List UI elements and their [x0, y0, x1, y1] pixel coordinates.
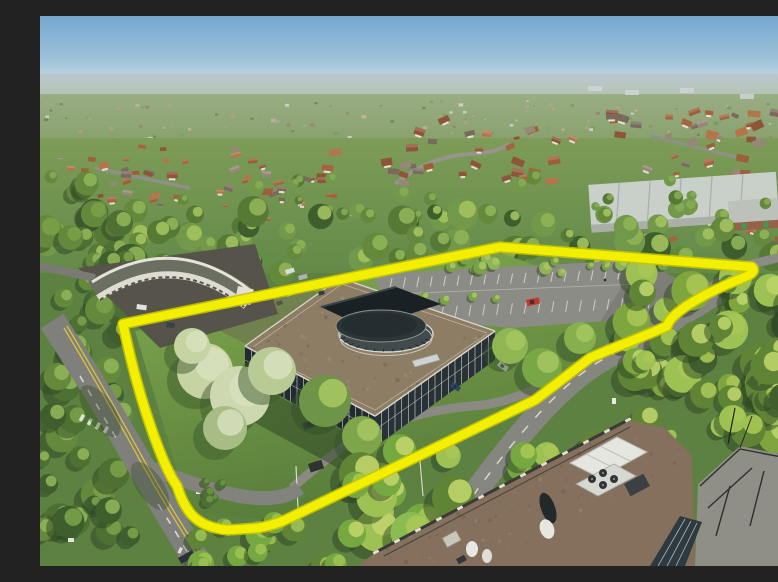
distant-speck — [525, 111, 528, 113]
tree-canopy-highlight — [413, 227, 423, 237]
distant-speck — [553, 108, 555, 110]
texture-dot — [479, 335, 481, 337]
distant-speck — [464, 122, 468, 125]
distant-speck — [188, 128, 191, 130]
distant-speck — [701, 107, 703, 109]
tower-roof-inner — [341, 313, 417, 338]
tree-canopy-highlight — [182, 195, 188, 201]
tree-canopy-highlight — [603, 209, 611, 217]
distant-speck — [484, 119, 486, 120]
tree-canopy-highlight — [485, 205, 496, 216]
distant-speck — [171, 125, 173, 126]
texture-dot — [404, 560, 408, 564]
texture-dot — [477, 520, 481, 524]
distant-speck — [619, 109, 621, 110]
house-wall — [608, 119, 615, 121]
tree-canopy-highlight — [105, 499, 120, 514]
tree-canopy-highlight — [444, 296, 450, 302]
distant-speck — [139, 125, 143, 128]
distant-speck — [561, 129, 564, 131]
tree-canopy-highlight — [84, 173, 97, 186]
distant-speck — [255, 117, 257, 119]
tree-canopy-highlight — [479, 262, 487, 270]
tree-canopy-highlight — [128, 528, 139, 539]
distant-speck — [593, 104, 596, 106]
tree-canopy-highlight — [429, 193, 436, 200]
distant-speck — [44, 118, 48, 121]
distant-speck — [440, 100, 443, 102]
tree-canopy-highlight — [61, 290, 72, 301]
texture-dot — [396, 378, 400, 382]
distant-speck — [634, 110, 637, 112]
distant-speck — [697, 134, 700, 136]
tree-canopy-highlight — [759, 229, 769, 239]
house-roof — [322, 164, 334, 171]
tree-canopy-highlight — [133, 201, 146, 214]
tree-canopy-highlight — [46, 476, 57, 487]
tree-canopy-highlight — [285, 224, 295, 234]
distant-speck — [89, 119, 92, 121]
white-roof-unit — [466, 541, 478, 557]
house-wall — [280, 201, 284, 203]
pedestrian — [604, 279, 607, 282]
distant-speck — [231, 115, 236, 118]
house-wall — [169, 178, 176, 180]
distant-speck — [727, 106, 732, 109]
texture-dot — [580, 449, 583, 452]
distant-building — [680, 88, 694, 93]
distant-speck — [181, 134, 184, 136]
tree-canopy-highlight — [40, 451, 49, 460]
tree-canopy-highlight — [720, 210, 728, 218]
tree-canopy-highlight — [594, 203, 599, 208]
texture-dot — [498, 540, 501, 543]
distant-speck — [60, 103, 63, 105]
distant-speck — [649, 125, 652, 127]
texture-dot — [656, 458, 658, 460]
texture-dot — [579, 509, 582, 512]
texture-dot — [329, 331, 330, 332]
house-roof-light — [475, 147, 483, 149]
house-roof — [398, 180, 409, 187]
distant-speck — [334, 132, 338, 135]
warehouse-green-door — [763, 221, 768, 227]
tree-canopy-highlight — [454, 230, 469, 245]
distant-speck — [65, 117, 67, 118]
tree-canopy-highlight — [731, 236, 745, 250]
texture-dot — [351, 351, 353, 353]
house-wall — [300, 206, 304, 208]
distant-speck — [86, 116, 88, 117]
texture-dot — [495, 515, 498, 518]
texture-dot — [474, 337, 477, 340]
tree-canopy-highlight — [532, 171, 540, 179]
texture-dot — [482, 539, 485, 542]
tree-canopy-highlight — [206, 495, 213, 502]
texture-dot — [488, 519, 491, 522]
texture-dot — [307, 345, 310, 348]
tree-canopy-highlight — [414, 243, 426, 255]
texture-dot — [429, 557, 431, 559]
distant-speck — [455, 102, 458, 104]
texture-dot — [404, 373, 408, 377]
distant-speck — [135, 104, 139, 107]
distant-speck — [459, 103, 463, 106]
pale-tree-highlight — [217, 409, 243, 435]
distant-speck — [345, 112, 348, 114]
tree-canopy-highlight — [518, 179, 526, 187]
house-roof — [545, 178, 558, 185]
tree-canopy-highlight — [450, 263, 456, 269]
tree-canopy-highlight — [399, 208, 415, 224]
texture-dot — [510, 509, 514, 513]
tree-canopy-highlight — [366, 209, 374, 217]
distant-speck — [449, 111, 452, 113]
tree-canopy-highlight — [577, 237, 589, 249]
distant-speck — [422, 107, 425, 109]
tree-canopy-highlight — [459, 201, 476, 218]
tree-canopy-highlight — [67, 227, 81, 241]
tree-canopy-highlight — [42, 218, 60, 236]
texture-dot — [473, 524, 475, 526]
tree-canopy-highlight — [293, 179, 298, 184]
distant-speck — [361, 115, 366, 118]
tree-canopy-highlight — [701, 382, 717, 398]
tree-canopy-highlight — [642, 408, 658, 424]
distant-speck — [390, 120, 394, 123]
distant-speck — [215, 113, 218, 115]
aerial-photograph — [40, 16, 778, 566]
distant-speck — [287, 124, 291, 127]
texture-dot — [428, 535, 431, 538]
white-roof-unit — [482, 549, 492, 563]
texture-dot — [409, 371, 412, 374]
pale-tree-highlight — [186, 331, 208, 353]
texture-dot — [488, 505, 491, 508]
tree-canopy-highlight — [77, 316, 86, 325]
house-roof — [279, 198, 285, 201]
house-roof — [388, 168, 400, 175]
tree-canopy-highlight — [520, 444, 535, 459]
tree-canopy-highlight — [764, 198, 770, 204]
house-roof — [747, 110, 760, 118]
texture-dot — [327, 357, 331, 361]
distant-speck — [285, 104, 289, 107]
tree-canopy-highlight — [623, 217, 637, 231]
distant-speck — [691, 131, 693, 132]
distant-speck — [358, 105, 361, 107]
texture-dot — [388, 556, 392, 560]
bus-stop-sign — [612, 398, 616, 404]
texture-dot — [636, 438, 638, 440]
texture-dot — [581, 493, 584, 496]
tree-canopy-highlight — [204, 478, 209, 483]
tree-canopy-highlight — [727, 387, 741, 401]
texture-dot — [324, 315, 328, 319]
tree-canopy-highlight — [124, 252, 134, 262]
tree-canopy-highlight — [605, 263, 610, 268]
tree-canopy-highlight — [566, 230, 574, 238]
distant-speck — [423, 126, 427, 129]
tree-canopy-highlight — [255, 544, 266, 555]
texture-dot — [463, 337, 465, 339]
tree-canopy-highlight — [116, 212, 130, 226]
texture-dot — [673, 461, 677, 465]
distant-speck — [676, 108, 678, 109]
texture-dot — [560, 465, 563, 468]
house-roof-light — [121, 171, 132, 174]
tree-canopy-highlight — [492, 258, 499, 265]
distant-speck — [714, 122, 719, 125]
distant-speck — [587, 119, 590, 121]
distant-speck — [275, 120, 280, 123]
distant-speck — [549, 103, 553, 106]
tree-canopy-highlight — [317, 206, 331, 220]
distant-speck — [168, 104, 172, 107]
tree-canopy-highlight — [537, 351, 559, 373]
texture-dot — [277, 334, 279, 336]
tree-canopy-highlight — [690, 191, 696, 197]
texture-dot — [528, 509, 530, 511]
texture-dot — [524, 541, 528, 545]
pale-tree-highlight — [264, 351, 293, 380]
tree-canopy-highlight — [96, 297, 112, 313]
texture-dot — [558, 504, 560, 506]
tree-canopy-highlight — [206, 237, 215, 246]
texture-dot — [526, 479, 527, 480]
tree-canopy-highlight — [396, 437, 415, 456]
tree-canopy-highlight — [399, 187, 408, 196]
texture-dot — [577, 496, 579, 498]
texture-dot — [485, 499, 487, 501]
distant-speck — [291, 130, 294, 132]
texture-dot — [610, 495, 612, 497]
tree-canopy-highlight — [193, 207, 203, 217]
texture-dot — [426, 555, 428, 557]
tree-canopy-highlight — [576, 324, 594, 342]
house-wall — [477, 152, 482, 154]
texture-dot — [405, 547, 407, 549]
distant-speck — [50, 110, 53, 112]
tree-canopy-highlight — [333, 555, 345, 566]
house-wall — [460, 176, 465, 178]
texture-dot — [491, 525, 493, 527]
distant-speck — [547, 127, 549, 128]
texture-dot — [430, 542, 432, 544]
tree-canopy-highlight — [50, 405, 64, 419]
distant-speck — [443, 114, 446, 116]
house-roof — [163, 158, 170, 162]
tree-canopy-highlight — [395, 250, 405, 260]
tree-canopy-highlight — [293, 245, 302, 254]
distant-speck — [585, 126, 589, 128]
texture-dot — [321, 311, 324, 314]
distant-speck — [631, 113, 634, 115]
distant-speck — [451, 132, 453, 133]
texture-dot — [267, 340, 270, 343]
texture-dot — [457, 555, 459, 557]
distant-speck — [769, 136, 772, 138]
texture-dot — [561, 489, 565, 493]
texture-dot — [650, 453, 653, 456]
tree-canopy-highlight — [561, 269, 566, 274]
tree-canopy-highlight — [506, 331, 526, 351]
tree-canopy-highlight — [541, 213, 555, 227]
texture-dot — [536, 509, 538, 511]
tree-canopy-highlight — [495, 295, 500, 300]
texture-dot — [305, 359, 307, 361]
tree-canopy-highlight — [187, 225, 202, 240]
house-roof — [160, 147, 166, 151]
distant-speck — [109, 127, 113, 130]
distant-speck — [527, 100, 529, 101]
distant-speck — [515, 120, 518, 122]
tree-canopy-highlight — [448, 479, 472, 503]
tree-canopy-highlight — [438, 233, 450, 245]
texture-dot — [351, 385, 353, 387]
texture-dot — [462, 516, 465, 519]
distant-speck — [142, 107, 144, 108]
texture-dot — [346, 380, 349, 383]
house-wall — [279, 191, 285, 193]
texture-dot — [591, 498, 592, 499]
tree-canopy-highlight — [554, 258, 559, 263]
distant-speck — [380, 105, 382, 107]
house-wall — [218, 193, 223, 195]
distant-speck — [452, 126, 455, 128]
house-roof — [132, 171, 140, 176]
distant-speck — [250, 118, 253, 120]
tree-canopy-highlight — [319, 379, 348, 408]
distant-speck — [44, 102, 47, 104]
texture-dot — [278, 343, 280, 345]
tree-canopy-highlight — [372, 235, 387, 250]
tree-canopy-highlight — [77, 448, 89, 460]
tree-canopy-highlight — [729, 407, 744, 422]
road-sign — [68, 538, 74, 542]
distant-speck — [45, 116, 49, 119]
texture-dot — [422, 554, 425, 557]
texture-dot — [300, 334, 304, 338]
texture-dot — [676, 448, 679, 451]
distant-speck — [62, 111, 64, 112]
tree-canopy-highlight — [348, 522, 364, 538]
distant-speck — [525, 105, 529, 108]
distant-speck — [744, 114, 747, 116]
tree-canopy-highlight — [423, 293, 428, 298]
distant-speck — [310, 123, 314, 126]
distant-speck — [767, 103, 769, 105]
texture-dot — [358, 356, 361, 359]
texture-dot — [538, 478, 542, 482]
texture-dot — [452, 529, 454, 531]
warehouse-green-door — [741, 223, 746, 229]
house-roof-light — [277, 187, 286, 189]
texture-dot — [509, 533, 511, 535]
distant-speck — [303, 125, 306, 127]
distant-speck — [465, 119, 467, 120]
texture-dot — [362, 387, 365, 390]
distant-speck — [49, 104, 51, 106]
distant-speck — [667, 131, 669, 133]
texture-dot — [392, 380, 394, 382]
tree-canopy-highlight — [156, 222, 169, 235]
tree-canopy-highlight — [703, 228, 714, 239]
texture-dot — [433, 561, 435, 563]
tree-canopy-highlight — [720, 219, 734, 233]
tree-canopy-highlight — [510, 211, 519, 220]
house-roof — [428, 139, 437, 144]
texture-dot — [366, 387, 369, 390]
house-roof — [459, 172, 467, 177]
texture-dot — [506, 546, 508, 548]
tree-canopy-highlight — [718, 317, 731, 330]
texture-dot — [651, 474, 654, 477]
texture-dot — [383, 363, 387, 367]
tree-canopy-highlight — [255, 181, 263, 189]
house-roof — [606, 114, 617, 120]
distant-speck — [571, 104, 574, 106]
tree-canopy-highlight — [655, 216, 667, 228]
texture-dot — [490, 497, 492, 499]
texture-dot — [436, 534, 438, 536]
tree-canopy-highlight — [590, 263, 594, 267]
distant-speck — [329, 106, 331, 107]
distant-speck — [163, 127, 166, 129]
house-wall — [109, 202, 115, 204]
texture-dot — [341, 360, 344, 363]
tree-canopy-highlight — [49, 172, 56, 179]
distant-speck — [617, 107, 619, 108]
texture-dot — [490, 542, 493, 545]
house-roof-light — [406, 144, 418, 148]
tree-canopy-highlight — [195, 530, 206, 541]
tree-canopy-highlight — [643, 352, 654, 363]
house-roof-light — [167, 172, 178, 175]
house-roof — [231, 147, 239, 153]
distant-speck — [510, 124, 514, 127]
tree-canopy-highlight — [686, 200, 695, 209]
tree-canopy-highlight — [472, 293, 477, 298]
distant-speck — [315, 102, 318, 104]
texture-dot — [299, 352, 303, 356]
distant-speck — [78, 130, 82, 133]
tree-canopy-highlight — [544, 444, 558, 458]
texture-dot — [528, 505, 531, 508]
distant-speck — [533, 105, 535, 106]
texture-dot — [275, 340, 277, 342]
tree-canopy-highlight — [674, 191, 682, 199]
distant-building — [625, 90, 639, 95]
distant-speck — [596, 112, 600, 115]
distant-building — [588, 86, 602, 91]
tree-canopy-highlight — [341, 208, 348, 215]
tree-canopy-highlight — [249, 198, 266, 215]
distant-speck — [156, 121, 158, 122]
tree-canopy-highlight — [104, 359, 119, 374]
house-wall — [746, 127, 750, 129]
distant-speck — [472, 115, 475, 117]
tree-canopy-highlight — [298, 197, 303, 202]
tree-canopy-highlight — [65, 508, 83, 526]
distant-building — [740, 94, 754, 99]
distant-speck — [145, 106, 149, 109]
tree-canopy-highlight — [357, 419, 379, 441]
tree-canopy-highlight — [668, 175, 674, 181]
tree-canopy-highlight — [220, 480, 226, 486]
distant-speck — [769, 123, 771, 124]
distant-speck — [224, 127, 226, 128]
